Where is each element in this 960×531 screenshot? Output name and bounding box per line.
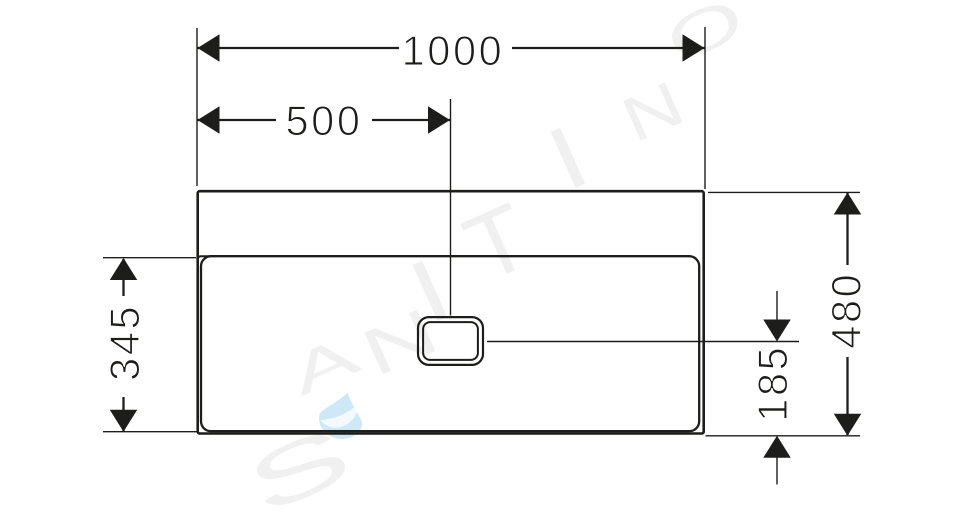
svg-text:480: 480 [823, 272, 870, 349]
svg-text:185: 185 [749, 345, 796, 422]
svg-text:500: 500 [285, 97, 362, 144]
svg-text:1000: 1000 [402, 27, 505, 74]
svg-text:345: 345 [101, 304, 148, 381]
